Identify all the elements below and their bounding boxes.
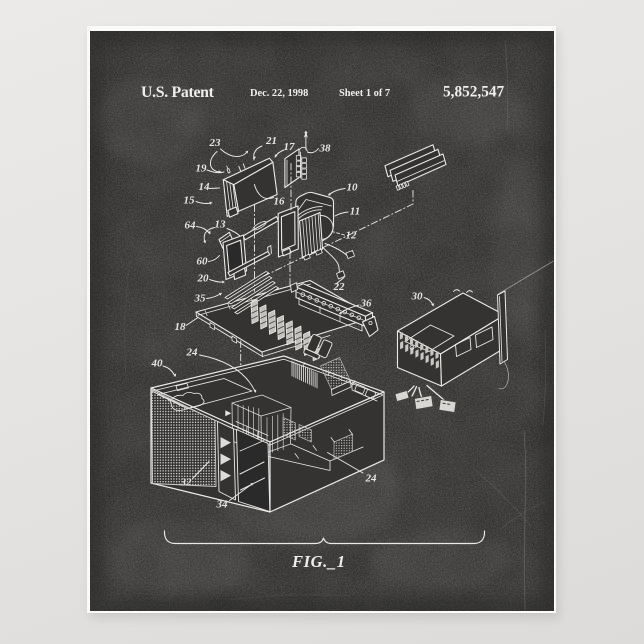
svg-text:30: 30 <box>411 291 424 303</box>
svg-text:22: 22 <box>333 281 346 293</box>
svg-text:12: 12 <box>346 230 358 242</box>
svg-text:Sheet 1 of 7: Sheet 1 of 7 <box>339 88 390 99</box>
svg-text:18: 18 <box>175 321 187 333</box>
svg-text:21: 21 <box>265 135 277 147</box>
svg-text:36: 36 <box>360 298 373 310</box>
svg-text:FIG._1: FIG._1 <box>291 552 346 571</box>
svg-text:16: 16 <box>274 196 286 208</box>
svg-text:19: 19 <box>196 163 208 175</box>
svg-text:U.S. Patent: U.S. Patent <box>141 84 215 101</box>
svg-text:64: 64 <box>185 220 197 232</box>
svg-text:20: 20 <box>197 273 210 285</box>
svg-text:60: 60 <box>197 256 209 268</box>
svg-text:32: 32 <box>180 477 193 489</box>
svg-text:13: 13 <box>215 219 227 231</box>
svg-text:34: 34 <box>216 499 229 511</box>
svg-text:24: 24 <box>365 473 378 485</box>
svg-text:38: 38 <box>319 143 332 155</box>
svg-text:15: 15 <box>184 195 196 207</box>
svg-text:11: 11 <box>350 206 360 218</box>
svg-text:Dec. 22, 1998: Dec. 22, 1998 <box>250 88 308 99</box>
svg-text:5,852,547: 5,852,547 <box>443 84 505 101</box>
svg-text:10: 10 <box>347 182 359 194</box>
svg-text:40: 40 <box>151 358 164 370</box>
svg-text:35: 35 <box>194 293 207 305</box>
svg-text:14: 14 <box>199 181 211 193</box>
svg-text:17: 17 <box>284 141 296 153</box>
svg-text:24: 24 <box>186 347 199 359</box>
svg-text:23: 23 <box>209 137 222 149</box>
